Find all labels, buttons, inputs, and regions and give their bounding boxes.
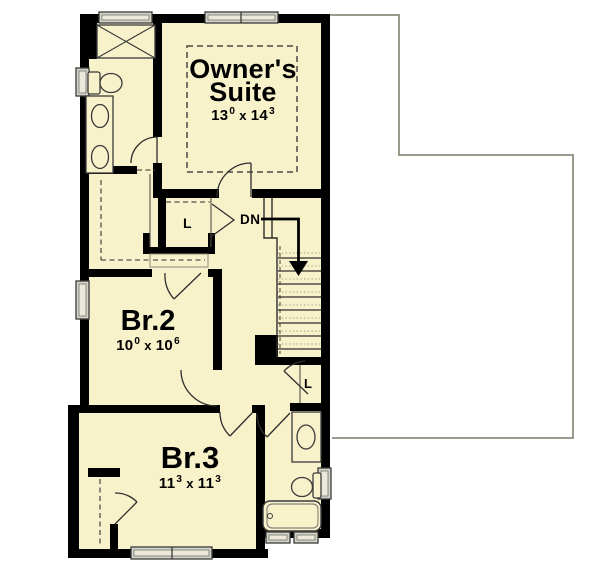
wall-segment (84, 269, 152, 277)
wall-segment (88, 468, 120, 477)
br3-label: Br.3 113x113 (159, 444, 221, 492)
room-dimensions: 100x106 (116, 336, 180, 354)
wall-segment (252, 189, 330, 198)
window (99, 12, 152, 23)
wall-left-lower (68, 406, 79, 558)
sink (297, 425, 315, 449)
wall-segment (256, 413, 265, 558)
wall-segment (143, 247, 215, 254)
floor-plan: Owner's Suite 130x143 Br.2 100x106 Br.3 … (0, 0, 600, 571)
floor-plan-drawing (0, 0, 600, 571)
wall-segment (290, 403, 321, 411)
wall-segment (213, 269, 222, 370)
window (76, 281, 89, 319)
wall-corner-block (80, 14, 97, 59)
window (294, 532, 318, 543)
stair-newel-block (255, 335, 278, 363)
vanity-sink (292, 412, 321, 462)
stairs-down-label: DN (240, 212, 261, 227)
vanity-double-sink (86, 96, 113, 173)
wall-segment (252, 405, 265, 413)
wall-segment (158, 198, 166, 250)
room-name: Br.3 (159, 444, 221, 472)
tub-faucet (268, 514, 273, 519)
window (205, 12, 278, 23)
wall-right (321, 14, 330, 538)
shower-box (97, 25, 155, 58)
owner-suite-label: Owner's Suite 130x143 (189, 58, 297, 124)
window (266, 532, 290, 543)
window (131, 547, 212, 559)
roof-outline (330, 15, 573, 438)
br2-label: Br.2 100x106 (116, 308, 180, 354)
room-dimensions: 113x113 (159, 474, 221, 492)
window (76, 68, 89, 96)
wall-segment (153, 189, 219, 198)
room-dimensions: 130x143 (189, 106, 297, 124)
room-name: Br.2 (116, 308, 180, 334)
wall-segment (68, 405, 220, 413)
bathtub (263, 501, 321, 531)
room-name: Owner's Suite (189, 58, 297, 104)
sink (92, 146, 109, 169)
linen-closet-label: L (183, 215, 192, 231)
toilet (88, 72, 122, 94)
linen-closet-label: L (304, 376, 312, 391)
sink (92, 105, 109, 128)
wall-segment (110, 524, 118, 550)
